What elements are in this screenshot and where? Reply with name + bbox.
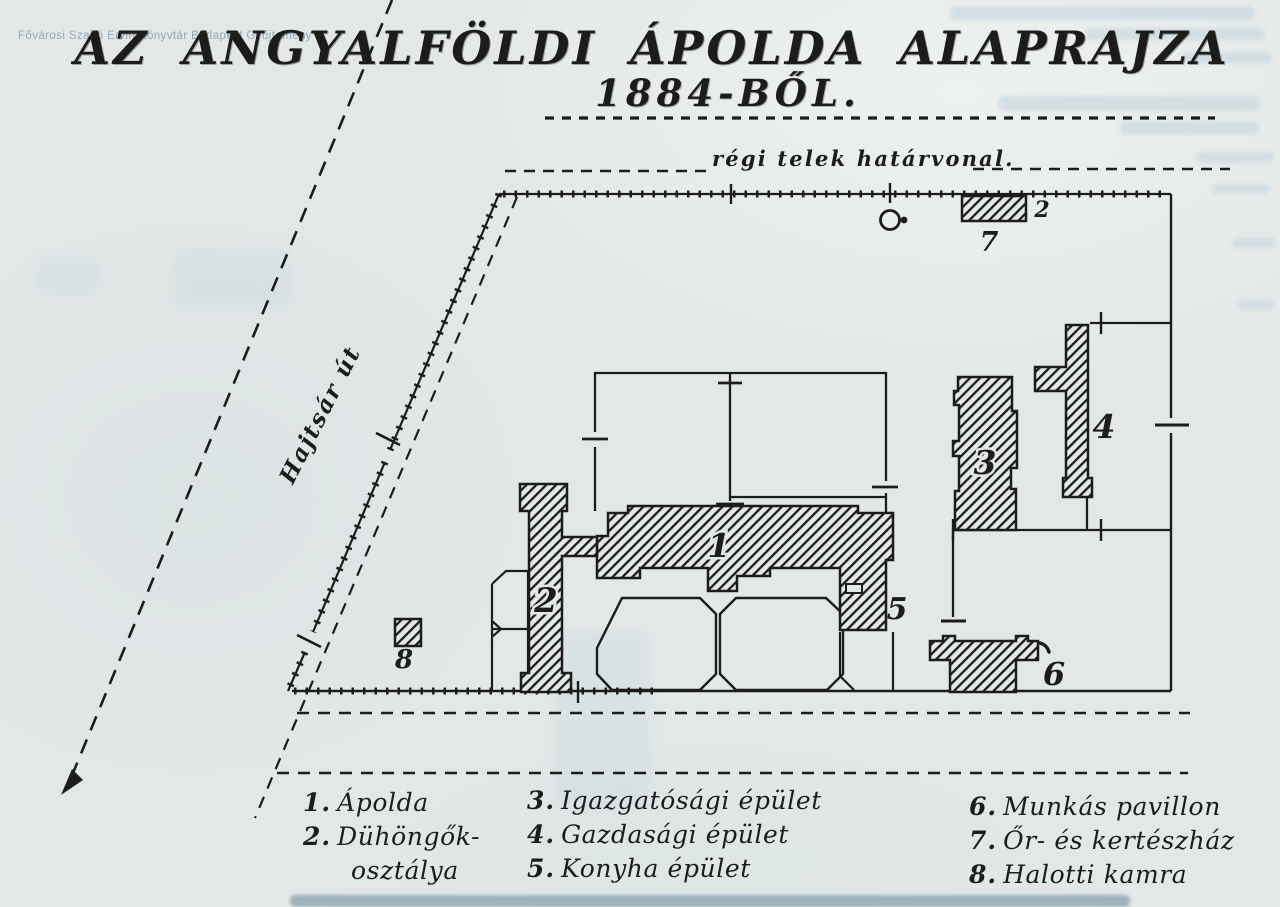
legend-item-8: 8.Halotti kamra bbox=[969, 858, 1235, 892]
legend-item-label: Munkás pavillon bbox=[1003, 792, 1221, 821]
legend-item-6: 6.Munkás pavillon bbox=[969, 790, 1235, 824]
courtyard-outline bbox=[595, 373, 886, 517]
plan-number-7: 7 bbox=[980, 227, 999, 258]
legend-item-label: Gazdasági épület bbox=[561, 820, 789, 849]
kitchen-yard-outline bbox=[840, 632, 893, 690]
legend-item-label: Őr- és kertészház bbox=[1003, 826, 1235, 855]
legend-column-1: 1.Ápolda 2.Dühöngők- osztálya bbox=[303, 786, 480, 888]
street-arrowhead bbox=[61, 769, 83, 795]
building-7-shape bbox=[962, 196, 1026, 221]
pen-mark bbox=[1040, 643, 1049, 652]
plan-number-8: 8 bbox=[394, 645, 413, 675]
building-5-door bbox=[846, 584, 862, 593]
plan-number-1: 1 bbox=[708, 526, 731, 565]
legend-item-label: Halotti kamra bbox=[1003, 860, 1187, 889]
building-4-shape bbox=[1035, 325, 1092, 497]
building-8-shape bbox=[395, 619, 421, 646]
well-symbol bbox=[881, 211, 900, 230]
legend-item-3: 3.Igazgatósági épület bbox=[527, 784, 822, 818]
legend-item-number: 1. bbox=[303, 788, 331, 817]
legend-item-2-continuation: osztálya bbox=[303, 854, 480, 888]
legend-item-7: 7.Őr- és kertészház bbox=[969, 824, 1235, 858]
legend-item-label: Ápolda bbox=[337, 788, 429, 817]
garden-beds-outline bbox=[597, 598, 843, 690]
legend-column-3: 6.Munkás pavillon 7.Őr- és kertészház 8.… bbox=[969, 790, 1235, 892]
plan-number-5: 5 bbox=[887, 592, 908, 627]
building-6-shape bbox=[930, 636, 1038, 692]
well-symbol-dot bbox=[901, 217, 908, 224]
plan-number-4: 4 bbox=[1093, 407, 1116, 446]
legend-item-label: Dühöngők- bbox=[337, 822, 480, 851]
legend-item-number: 2. bbox=[303, 822, 331, 851]
legend-item-number: 5. bbox=[527, 854, 555, 883]
building-1-shape bbox=[597, 506, 893, 630]
street-label: Hajtsár út bbox=[274, 341, 367, 489]
legend-item-number: 7. bbox=[969, 826, 997, 855]
plan-number-3: 3 bbox=[974, 443, 997, 482]
site-plan-drawing: 1 2 3 4 5 6 7 8 2 Hajtsár út bbox=[0, 0, 1280, 907]
legend-item-label: Konyha épület bbox=[561, 854, 751, 883]
old-plot-boundary-dashed-line bbox=[505, 169, 1230, 171]
legend-item-label: Igazgatósági épület bbox=[561, 786, 822, 815]
inner-dashed-boundary bbox=[255, 197, 517, 818]
legend-item-number: 4. bbox=[527, 820, 555, 849]
legend-item-1: 1.Ápolda bbox=[303, 786, 480, 820]
scanned-plan-page: Fővárosi Szabó Ervin Könyvtár Budapest G… bbox=[0, 0, 1280, 907]
plot-number-2: 2 bbox=[1033, 197, 1049, 223]
plan-number-6: 6 bbox=[1043, 655, 1065, 693]
legend-item-number: 6. bbox=[969, 792, 997, 821]
courtyard-gate-tick bbox=[582, 383, 898, 504]
legend-column-2: 3.Igazgatósági épület 4.Gazdasági épület… bbox=[527, 784, 822, 886]
legend-item-number: 8. bbox=[969, 860, 997, 889]
legend-item-2: 2.Dühöngők- bbox=[303, 820, 480, 854]
legend-item-5: 5.Konyha épület bbox=[527, 852, 822, 886]
building-2-shape bbox=[520, 484, 597, 692]
legend-item-number: 3. bbox=[527, 786, 555, 815]
legend-item-4: 4.Gazdasági épület bbox=[527, 818, 822, 852]
plan-number-2: 2 bbox=[533, 581, 558, 621]
